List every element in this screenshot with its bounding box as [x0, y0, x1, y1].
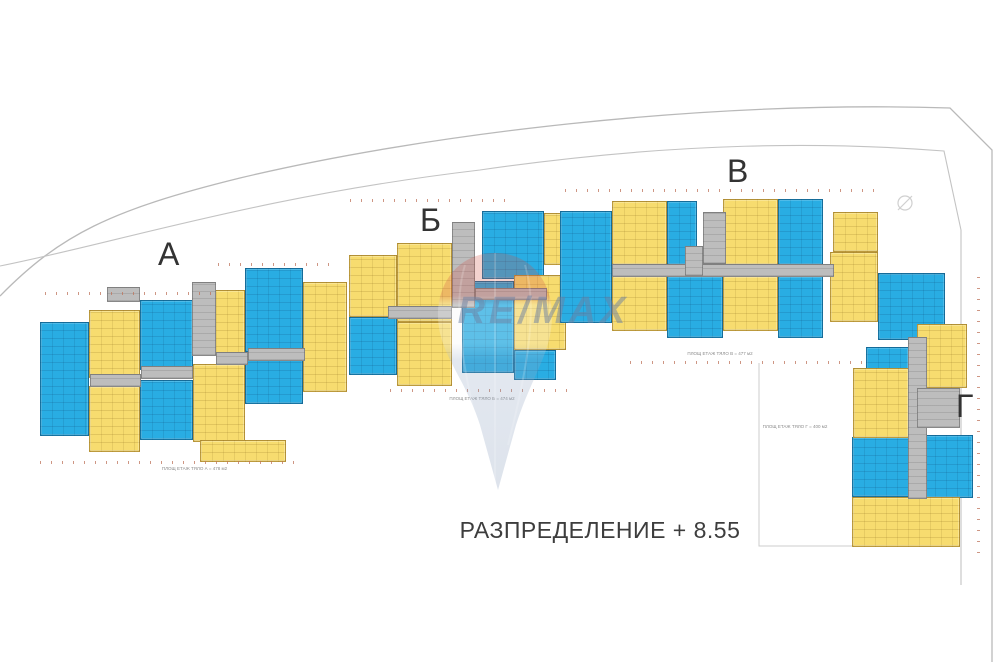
apartment-block-blue-a — [140, 300, 193, 370]
section-label-g: Г — [956, 390, 973, 422]
apartment-block-blue-b — [482, 211, 544, 279]
apartment-block-yellow-v — [723, 199, 778, 265]
apartment-block-blue-a — [245, 358, 303, 404]
area-label-g: ПЛОЩ ЕТАЖ ТЯЛО Г = 400 м2 — [750, 424, 840, 429]
section-label-a: А — [158, 238, 179, 270]
apartment-block-yellow-v — [830, 252, 878, 322]
dimension-ticks-g — [977, 275, 980, 553]
dimension-ticks-v — [565, 189, 880, 192]
floor-plan-canvas: АПЛОЩ ЕТАЖ ТЯЛО А = 478 м2БПЛОЩ ЕТАЖ ТЯЛ… — [0, 0, 1000, 667]
apartment-block-yellow-a — [193, 364, 245, 442]
apartment-block-yellow-g — [852, 497, 960, 547]
corridor-block-a — [248, 348, 305, 361]
apartment-block-yellow-a — [200, 440, 286, 462]
apartment-block-blue-g — [852, 437, 912, 497]
corridor-block-v — [612, 264, 834, 277]
corridor-block-b — [452, 222, 475, 308]
apartment-block-yellow-v — [612, 201, 667, 265]
apartment-block-blue-b — [514, 350, 556, 380]
corridor-block-v — [703, 212, 726, 264]
area-label-a: ПЛОЩ ЕТАЖ ТЯЛО А = 478 м2 — [147, 466, 242, 471]
apartment-block-yellow-a — [303, 282, 347, 392]
drawing-title: РАЗПРЕДЕЛЕНИЕ + 8.55 — [420, 517, 780, 544]
apartment-block-blue-v — [667, 276, 723, 338]
corridor-block-g — [917, 388, 960, 428]
apartment-block-yellow-b — [397, 322, 452, 386]
corridor-block-v — [685, 246, 703, 276]
area-label-v: ПЛОЩ ЕТАЖ ТЯЛО В = 477 м2 — [675, 351, 765, 356]
apartment-block-yellow-a — [89, 386, 140, 452]
dimension-ticks-a — [45, 292, 215, 295]
dimension-ticks-a — [40, 461, 302, 464]
corridor-block-a — [216, 352, 248, 365]
apartment-block-yellow-v — [612, 276, 667, 331]
apartment-block-yellow-v — [723, 276, 778, 331]
apartment-block-yellow-g — [853, 368, 909, 438]
apartment-block-blue-a — [40, 322, 89, 436]
corridor-block-a — [141, 366, 193, 379]
apartment-block-blue-b — [349, 317, 397, 375]
corridor-block-a — [90, 374, 141, 387]
apartment-block-yellow-a — [89, 310, 140, 378]
apartment-block-blue-a — [140, 380, 193, 440]
apartment-block-yellow-b — [514, 275, 566, 350]
dimension-ticks-v — [630, 361, 880, 364]
apartment-block-blue-v — [560, 211, 612, 323]
apartment-block-yellow-v — [833, 212, 878, 252]
buildings-layer: АПЛОЩ ЕТАЖ ТЯЛО А = 478 м2БПЛОЩ ЕТАЖ ТЯЛ… — [0, 0, 1000, 667]
dimension-ticks-a — [218, 263, 338, 266]
section-label-b: Б — [420, 204, 441, 236]
section-label-v: В — [727, 155, 748, 187]
corridor-block-b — [475, 288, 547, 300]
corridor-block-b — [388, 306, 452, 319]
apartment-block-blue-v — [778, 276, 823, 338]
area-label-b: ПЛОЩ ЕТАЖ ТЯЛО Б = 474 м2 — [437, 396, 527, 401]
dimension-ticks-b — [390, 389, 568, 392]
apartment-block-blue-g — [923, 435, 973, 498]
apartment-block-blue-v — [778, 199, 823, 265]
apartment-block-blue-a — [245, 268, 303, 352]
